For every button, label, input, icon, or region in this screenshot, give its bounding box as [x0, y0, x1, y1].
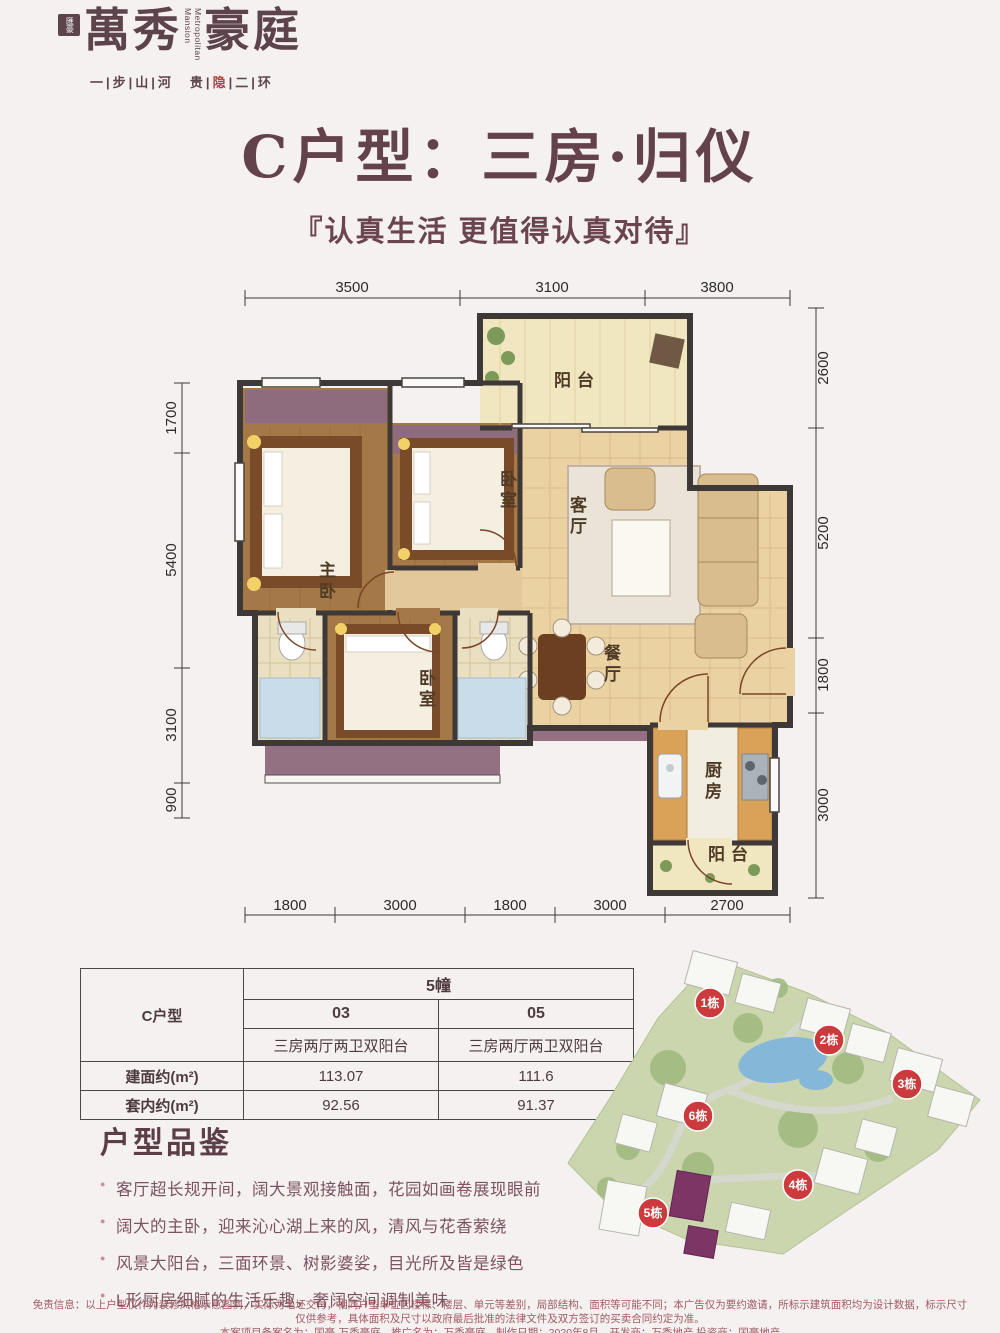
dim-label: 5400	[163, 543, 180, 576]
disclaimer: 免责信息：以上户型仅作为装修风格示意图例，实际为毛坯交付，相同户型单位因楼栋、楼…	[30, 1298, 970, 1333]
feature-item: 客厅超长规开间，阔大景观接触面，花园如画卷展现眼前	[100, 1176, 570, 1200]
brand-seal: 匯豪	[58, 14, 80, 36]
room-label-kitchen: 厨房	[699, 761, 724, 803]
sink	[658, 754, 682, 798]
dim-label: 5200	[815, 516, 832, 549]
gross-area-03: 113.07	[244, 1062, 439, 1091]
dim-label: 1800	[273, 897, 306, 914]
dim-label: 3000	[593, 897, 626, 914]
tagline-part: |二|环	[229, 75, 274, 90]
dim-label: 900	[163, 787, 180, 812]
building-badge-label: 3栋	[898, 1076, 917, 1091]
room-label-bedroom2: 卧室	[494, 470, 519, 512]
dim-label: 3800	[700, 279, 733, 296]
floor-plan-area: 3500 3100 3800 1800 3000 1800 3000 2700 …	[150, 278, 850, 933]
brand-logo: 匯豪 萬秀 Metropolitan Mansion 豪庭 一|步|山|河 贵|…	[58, 6, 358, 91]
features-section: 户型品鉴 客厅超长规开间，阔大景观接触面，花园如画卷展现眼前 阔大的主卧，迎来沁…	[100, 1118, 570, 1324]
room-label-balcony-bottom: 阳台	[708, 840, 754, 865]
disclaimer-line1: 免责信息：以上户型仅作为装修风格示意图例，实际为毛坯交付，相同户型单位因楼栋、楼…	[30, 1298, 970, 1326]
dim-label: 3000	[815, 788, 832, 821]
dim-label: 3500	[335, 279, 368, 296]
dining-table	[538, 634, 586, 700]
building-badge-label: 6栋	[689, 1108, 708, 1123]
poster-page: 匯豪 萬秀 Metropolitan Mansion 豪庭 一|步|山|河 贵|…	[0, 0, 1000, 1333]
net-area-03: 92.56	[244, 1091, 439, 1120]
unit-col-03: 03	[244, 1000, 439, 1029]
dim-label: 2700	[710, 897, 743, 914]
room-label-dining: 餐厅	[598, 644, 623, 686]
room-label-balcony-top: 阳台	[554, 366, 600, 391]
room-label-living: 客厅	[564, 496, 589, 538]
gross-area-label: 建面约(m²)	[81, 1062, 244, 1091]
dim-label: 2600	[815, 351, 832, 384]
tagline-part: 一|步|山|河 贵|	[90, 75, 213, 90]
building-badge-label: 5栋	[644, 1205, 663, 1220]
brand-name-left: 萬秀	[84, 6, 182, 54]
balcony-chair	[649, 333, 685, 369]
disclaimer-line2: 本案项目备案名为：国豪·万秀豪庭，推广名为：万秀豪庭，制作日期：2020年8月，…	[30, 1326, 970, 1333]
sofa	[698, 474, 758, 606]
dim-label: 3100	[163, 708, 180, 741]
dim-label: 1800	[493, 897, 526, 914]
brand-name-right: 豪庭	[204, 6, 302, 54]
shower	[260, 678, 320, 738]
dim-label: 3100	[535, 279, 568, 296]
page-title: C户型：三房·归仪	[0, 110, 1000, 194]
shower	[458, 678, 526, 738]
unit-type-cell: C户型	[81, 969, 244, 1062]
net-area-label: 套内约(m²)	[81, 1091, 244, 1120]
site-map-graphic: 1栋 2栋 3栋 6栋 4栋 5栋	[548, 948, 998, 1266]
site-map: 1栋 2栋 3栋 6栋 4栋 5栋	[548, 948, 998, 1271]
feature-item: 阔大的主卧，迎来沁心湖上来的风，清风与花香萦绕	[100, 1213, 570, 1237]
building-badge-label: 4栋	[789, 1177, 808, 1192]
brand-tagline: 一|步|山|河 贵|隐|二|环	[90, 72, 358, 91]
building-badge-label: 2栋	[820, 1032, 839, 1047]
room-label-bedroom3: 卧室	[413, 669, 438, 711]
brand-name-english: Metropolitan Mansion	[183, 8, 203, 66]
page-subtitle: 『认真生活 更值得认真对待』	[0, 208, 1000, 250]
features-heading: 户型品鉴	[100, 1118, 570, 1162]
room-label-master: 主卧	[313, 561, 338, 603]
layout-cell-03: 三房两厅两卫双阳台	[244, 1029, 439, 1062]
dim-label: 3000	[383, 897, 416, 914]
dim-label: 1700	[163, 401, 180, 434]
tagline-accent: 隐	[213, 75, 229, 90]
building-badge-label: 1栋	[701, 995, 720, 1010]
feature-item: 风景大阳台，三面环景、树影婆娑，目光所及皆是绿色	[100, 1250, 570, 1274]
coffee-table	[612, 520, 670, 596]
floor-plan: 3500 3100 3800 1800 3000 1800 3000 2700 …	[150, 278, 850, 933]
dim-label: 1800	[815, 658, 832, 691]
